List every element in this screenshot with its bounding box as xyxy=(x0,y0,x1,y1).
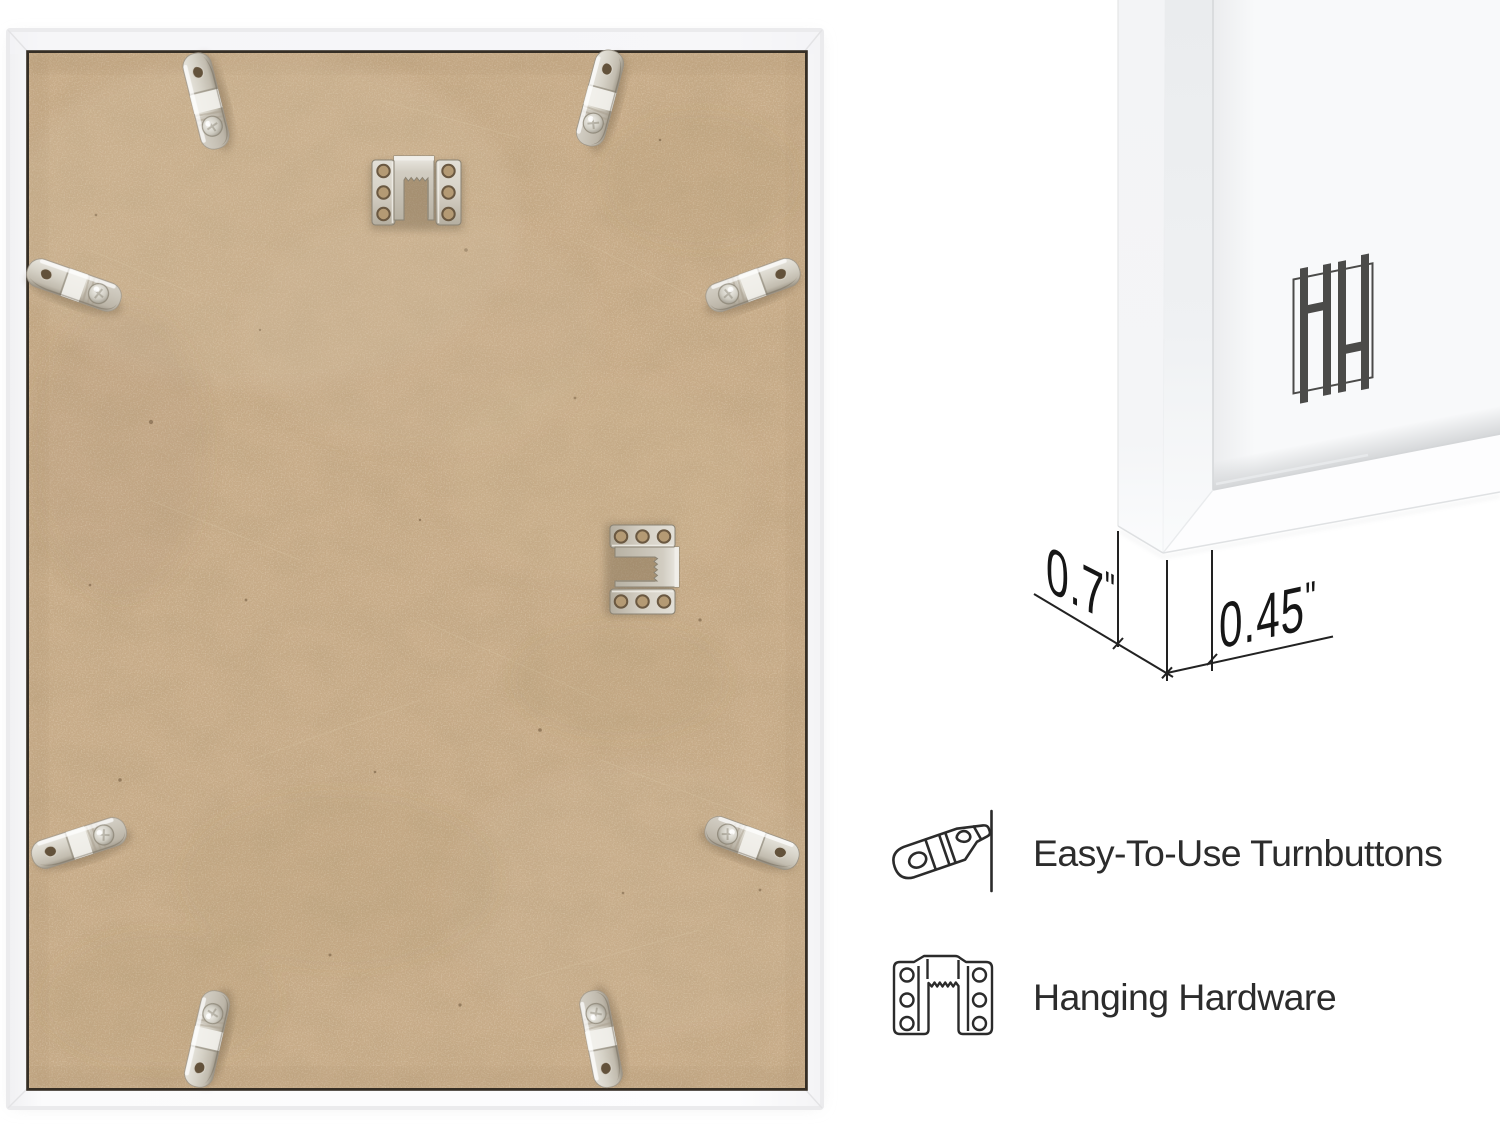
svg-text:Hanging Hardware: Hanging Hardware xyxy=(1033,976,1336,1018)
svg-text:Easy-To-Use Turnbuttons: Easy-To-Use Turnbuttons xyxy=(1033,832,1442,874)
